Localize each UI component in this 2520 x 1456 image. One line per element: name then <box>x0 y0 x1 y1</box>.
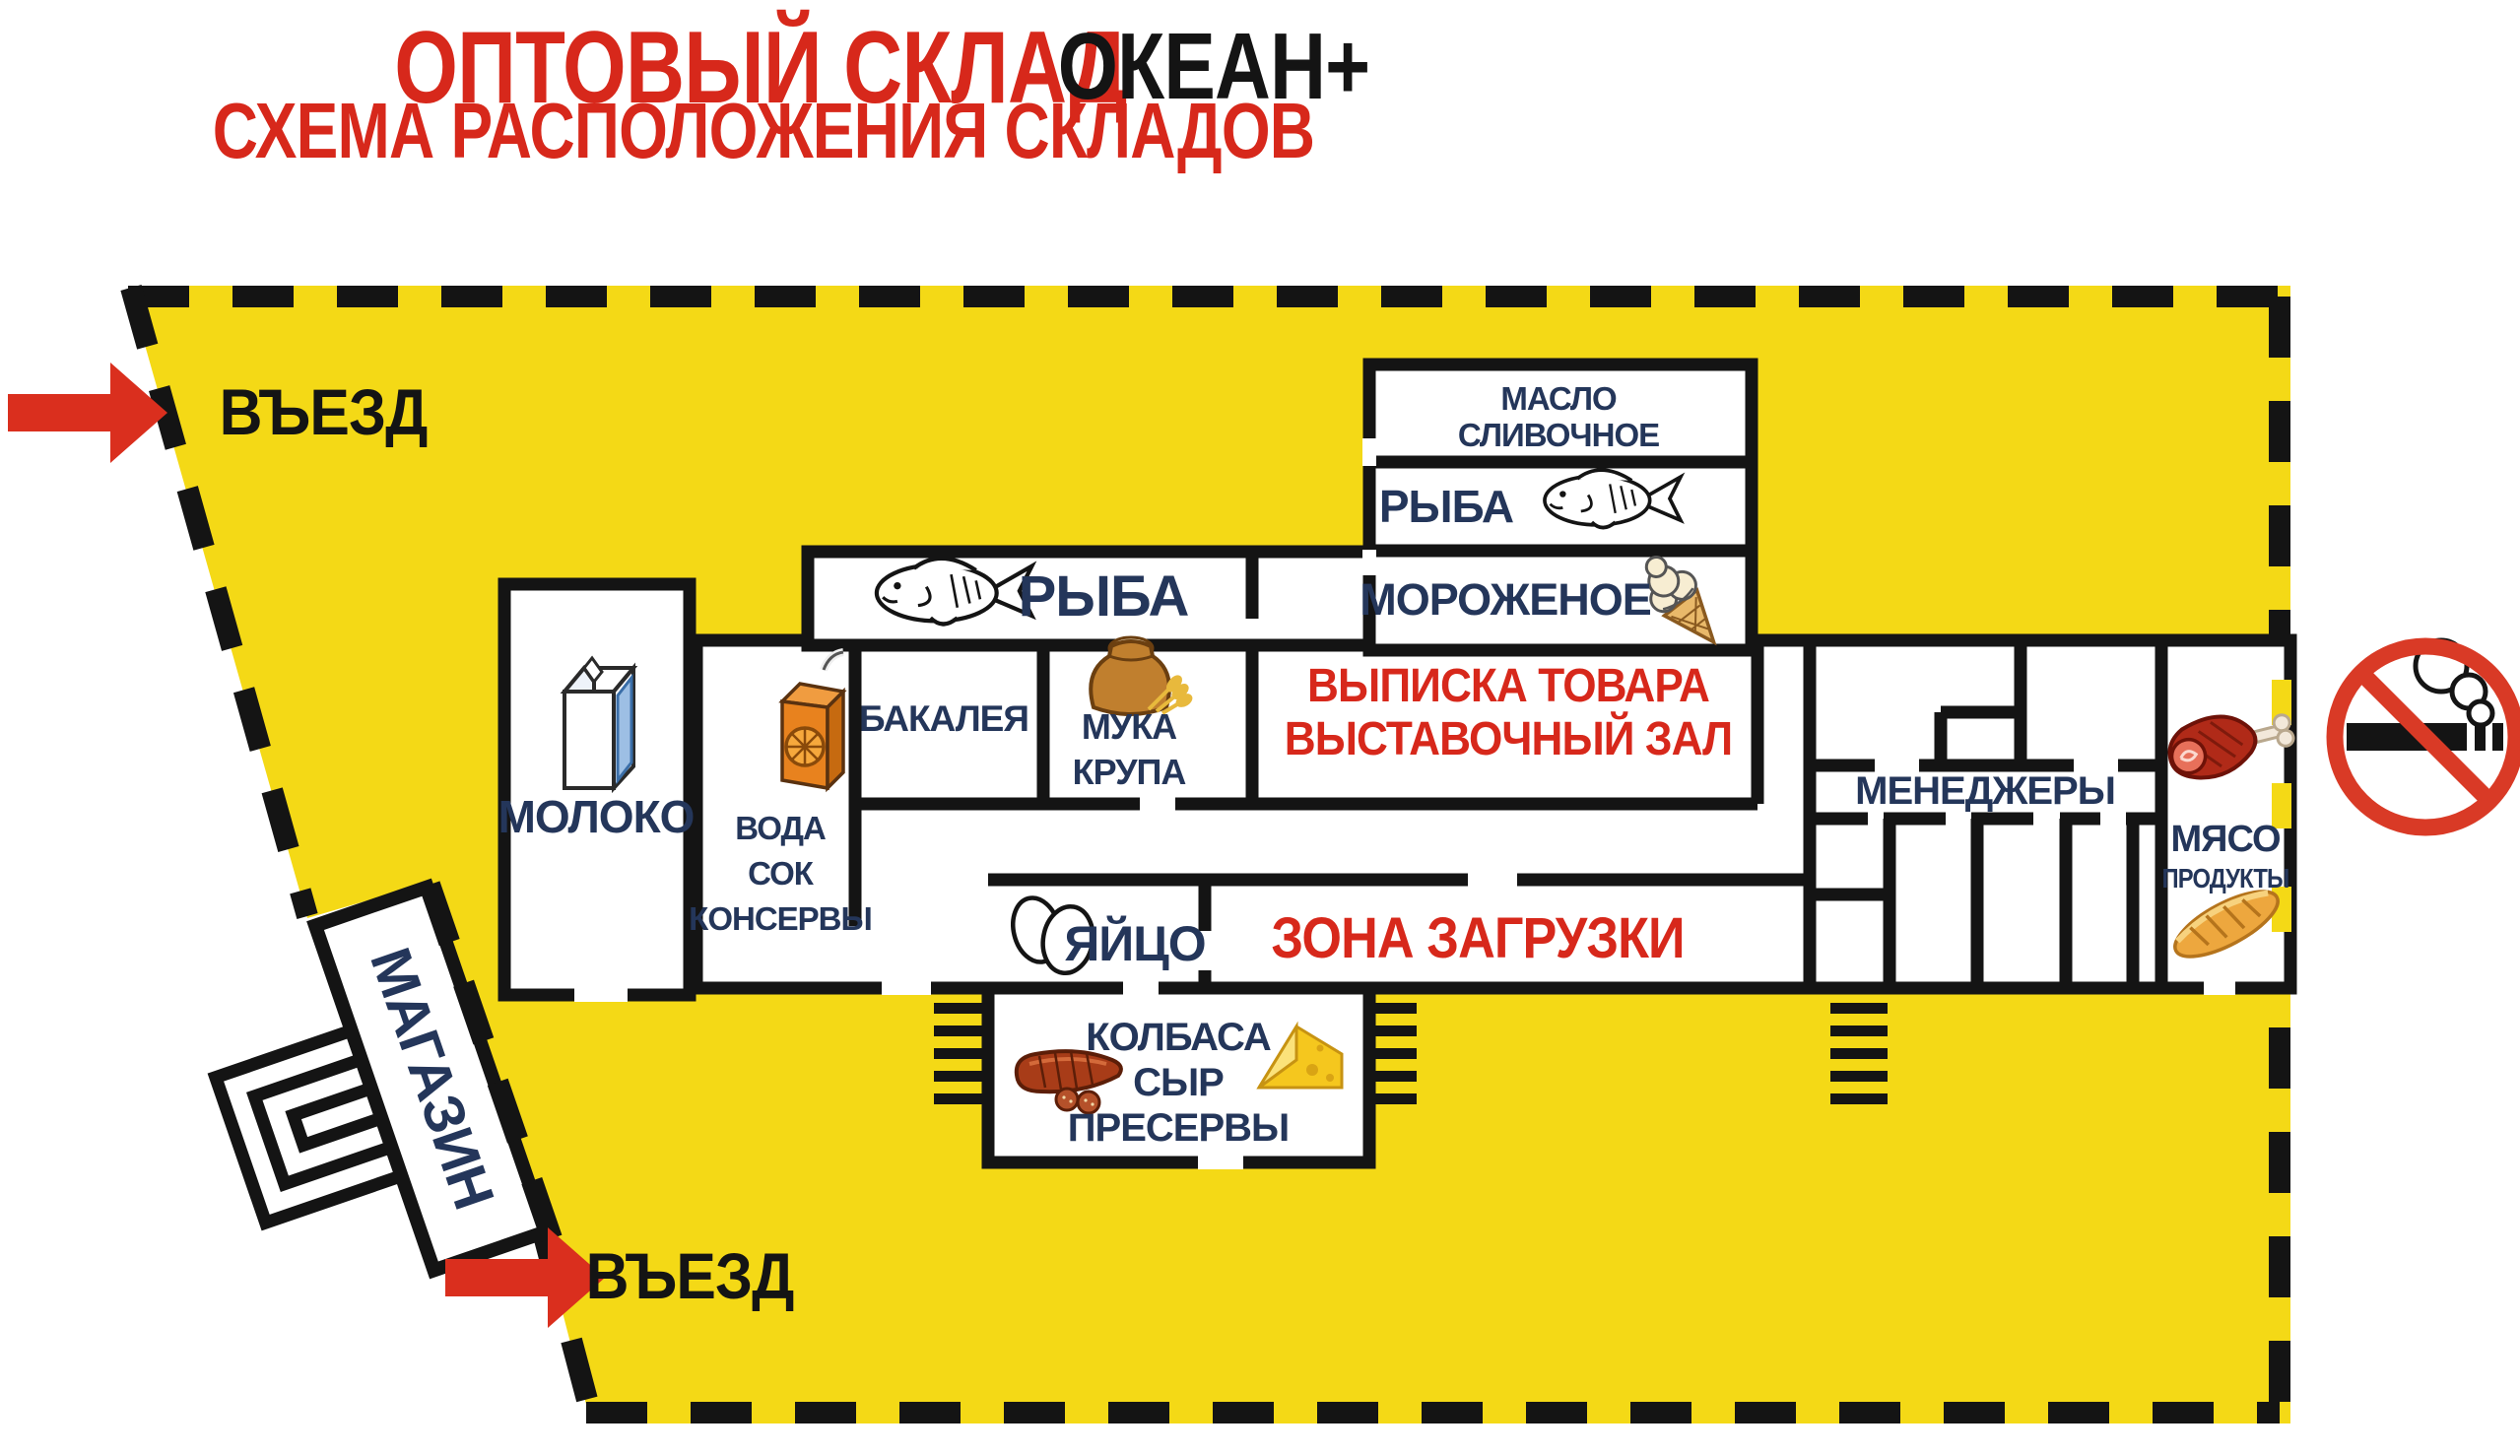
room-label-ryba-small: РЫБА <box>1379 481 1513 532</box>
room-label-ryba-main: РЫБА <box>1019 564 1189 629</box>
room-label-sok: СОК <box>748 855 815 892</box>
room-label-yaytso: ЯЙЦО <box>1064 915 1205 971</box>
warehouse-map-poster: МАГАЗИН <box>0 0 2520 1456</box>
room-label-syr: СЫР <box>1133 1061 1224 1104</box>
room-label-krupa: КРУПА <box>1073 752 1187 792</box>
room-label-morozhenoe: МОРОЖЕНОЕ <box>1359 574 1651 625</box>
entrance-top-label: ВЪЕЗД <box>220 377 429 449</box>
room-label-bakaleya: БАКАЛЕЯ <box>859 698 1028 739</box>
room-label-moloko: МОЛОКО <box>498 791 695 842</box>
room-label-konservy: КОНСЕРВЫ <box>689 900 872 937</box>
room-label-myaso: МЯСО <box>2170 819 2280 860</box>
room-label-vypiska: ВЫПИСКА ТОВАРА <box>1307 658 1710 711</box>
room-label-preservy: ПРЕСЕРВЫ <box>1068 1106 1289 1150</box>
room-label-menedzhery: МЕНЕДЖЕРЫ <box>1855 769 2115 813</box>
milk-carton-icon <box>564 658 633 788</box>
page-subtitle: СХЕМА РАСПОЛОЖЕНИЯ СКЛАДОВ <box>213 87 1314 174</box>
room-label-slivochnoe: СЛИВОЧНОЕ <box>1458 417 1659 453</box>
map-canvas: МАГАЗИН <box>0 0 2520 1456</box>
room-label-zona-zagruzki: ЗОНА ЗАГРУЗКИ <box>1271 905 1684 969</box>
room-label-voda: ВОДА <box>735 810 826 846</box>
room-label-muka: МУКА <box>1082 706 1177 747</box>
entrance-bottom-label: ВЪЕЗД <box>586 1241 795 1313</box>
room-label-produkty: ПРОДУКТЫ <box>2161 862 2288 893</box>
room-label-maslo: МАСЛО <box>1500 380 1617 417</box>
room-label-vystavochny-zal: ВЫСТАВОЧНЫЙ ЗАЛ <box>1285 711 1732 764</box>
room-label-kolbasa: КОЛБАСА <box>1086 1016 1271 1059</box>
